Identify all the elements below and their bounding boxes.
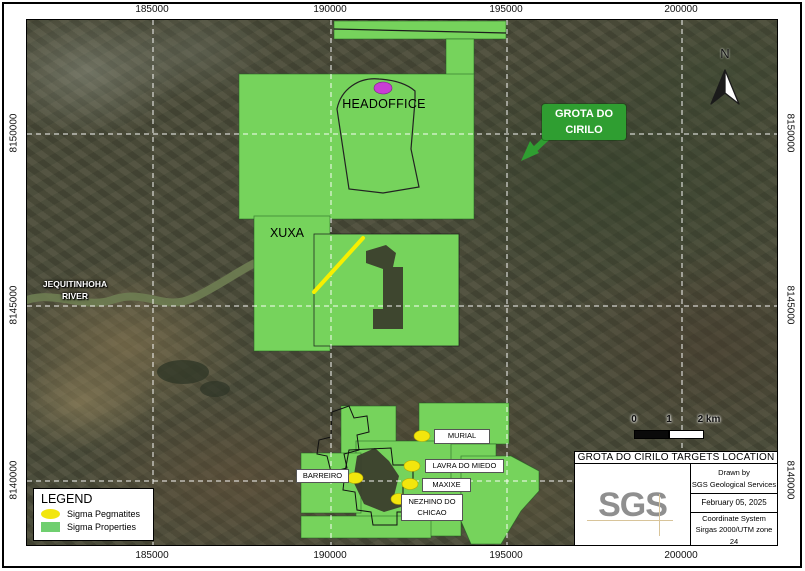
date-cell: February 05, 2025 xyxy=(691,494,777,513)
map-figure: 185000 190000 195000 200000 185000 19000… xyxy=(0,0,805,571)
axis-tick-bottom-195000: 195000 xyxy=(474,550,538,561)
legend-item-label: Sigma Properties xyxy=(67,522,136,532)
scalebar-segment-black xyxy=(634,430,669,439)
pegmatite-marker-lavra xyxy=(404,461,420,472)
target-label-maxixe: MAXIXE xyxy=(422,478,471,492)
label-headoffice: HEADOFFICE xyxy=(329,97,439,111)
property-polygon-main-block xyxy=(239,74,474,219)
pegmatite-marker-murial xyxy=(414,431,430,442)
property-swatch-icon xyxy=(41,522,60,532)
axis-tick-top-190000: 190000 xyxy=(298,4,362,15)
axis-tick-bottom-190000: 190000 xyxy=(298,550,362,561)
scalebar-tick-1: 1 xyxy=(649,414,689,425)
axis-tick-left-8140000: 8140000 xyxy=(9,448,20,512)
lake-shape xyxy=(200,381,230,397)
property-polygon-connector xyxy=(446,39,474,75)
axis-tick-top-185000: 185000 xyxy=(120,4,184,15)
axis-tick-left-8150000: 8150000 xyxy=(9,101,20,165)
river-label-line2: RIVER xyxy=(29,290,121,302)
sgs-logo: SGS xyxy=(575,464,691,546)
title-block: GROTA DO CIRILO TARGETS LOCATION SGS Dra… xyxy=(574,451,778,546)
axis-tick-right-8150000: 8150000 xyxy=(785,101,796,165)
pegmatite-swatch-icon xyxy=(41,509,60,519)
callout-grota-do-cirilo: GROTA DO CIRILO xyxy=(542,104,626,140)
drawn-by-cell: Drawn by SGS Geological Services xyxy=(691,464,777,494)
scalebar-tick-0: 0 xyxy=(614,414,654,425)
legend-item-pegmatites: Sigma Pegmatites xyxy=(41,508,147,520)
scalebar-tick-2km: 2 km xyxy=(689,414,729,425)
axis-tick-bottom-200000: 200000 xyxy=(649,550,713,561)
coordinate-system-cell: Coordinate System Sirgas 2000/UTM zone 2… xyxy=(691,513,777,546)
legend: LEGEND Sigma Pegmatites Sigma Properties xyxy=(33,488,154,541)
target-label-lavra-do-miedo: LAVRA DO MIEDO xyxy=(425,459,504,473)
map-title: GROTA DO CIRILO TARGETS LOCATION xyxy=(575,452,777,464)
river-label-line1: JEQUITINHOHA xyxy=(29,278,121,290)
pegmatite-marker-barreiro xyxy=(347,473,363,484)
coord-line2: Sirgas 2000/UTM zone 24 xyxy=(691,524,777,546)
north-arrow-icon xyxy=(711,70,739,104)
target-label-barreiro: BARREIRO xyxy=(296,469,349,483)
legend-item-label: Sigma Pegmatites xyxy=(67,509,140,519)
scalebar-segment-white xyxy=(669,430,704,439)
sgs-logo-vline xyxy=(659,494,660,536)
axis-tick-right-8140000: 8140000 xyxy=(785,448,796,512)
drawn-by-line2: SGS Geological Services xyxy=(692,479,776,490)
pegmatite-marker-maxixe xyxy=(402,479,418,490)
legend-title: LEGEND xyxy=(41,492,147,506)
axis-tick-top-195000: 195000 xyxy=(474,4,538,15)
target-label-murial: MURIAL xyxy=(434,429,490,444)
callout-line1: GROTA DO xyxy=(542,107,626,123)
legend-item-properties: Sigma Properties xyxy=(41,521,147,533)
lake-shape xyxy=(157,360,209,384)
callout-line2: CIRILO xyxy=(542,123,626,139)
map-canvas: HEADOFFICE XUXA JEQUITINHOHA RIVER N GRO… xyxy=(26,19,778,546)
drawn-by-line1: Drawn by xyxy=(718,467,750,478)
axis-tick-left-8145000: 8145000 xyxy=(9,273,20,337)
sgs-logo-hline xyxy=(587,520,673,521)
axis-tick-bottom-185000: 185000 xyxy=(120,550,184,561)
axis-tick-right-8145000: 8145000 xyxy=(785,273,796,337)
axis-tick-top-200000: 200000 xyxy=(649,4,713,15)
target-label-nezhino-do-chicao: NEZHINO DO CHICAO xyxy=(401,494,463,521)
label-jequitinhoha-river: JEQUITINHOHA RIVER xyxy=(29,278,121,303)
north-label: N xyxy=(713,46,737,61)
headoffice-marker xyxy=(374,82,392,94)
coord-line1: Coordinate System xyxy=(702,513,766,524)
title-block-meta: Drawn by SGS Geological Services Februar… xyxy=(691,464,777,546)
label-xuxa: XUXA xyxy=(257,226,317,240)
title-block-body: SGS Drawn by SGS Geological Services Feb… xyxy=(575,464,777,546)
